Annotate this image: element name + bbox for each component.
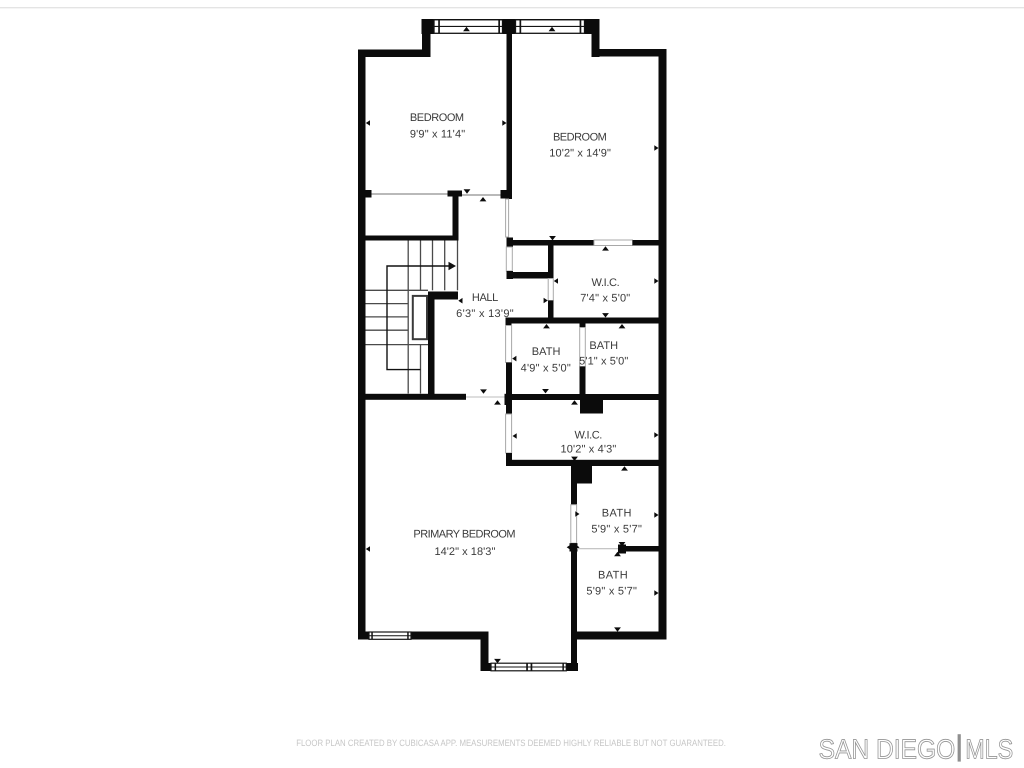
- svg-text:MLS: MLS: [965, 733, 1013, 764]
- svg-text:BATH: BATH: [602, 508, 632, 520]
- svg-text:BEDROOM: BEDROOM: [553, 132, 607, 144]
- svg-text:BEDROOM: BEDROOM: [410, 112, 464, 124]
- svg-text:6'3" x 13'9": 6'3" x 13'9": [456, 308, 514, 320]
- svg-text:7'4" x 5'0": 7'4" x 5'0": [580, 293, 630, 305]
- svg-text:5'9" x 5'7": 5'9" x 5'7": [586, 586, 637, 598]
- svg-text:W.I.C.: W.I.C.: [574, 430, 602, 442]
- svg-text:9'9" x 11'4": 9'9" x 11'4": [410, 129, 465, 141]
- svg-text:4'9" x 5'0": 4'9" x 5'0": [521, 363, 571, 375]
- svg-text:5'9" x 5'7": 5'9" x 5'7": [591, 524, 642, 536]
- svg-text:SAN DIEGO: SAN DIEGO: [819, 733, 956, 764]
- svg-text:14'2" x 18'3": 14'2" x 18'3": [434, 546, 495, 558]
- svg-text:PRIMARY BEDROOM: PRIMARY BEDROOM: [413, 529, 515, 541]
- svg-text:BATH: BATH: [589, 340, 618, 352]
- svg-text:FLOOR PLAN CREATED BY CUBICASA: FLOOR PLAN CREATED BY CUBICASA APP. MEAS…: [296, 738, 726, 748]
- svg-text:10'2" x 14'9": 10'2" x 14'9": [549, 147, 611, 159]
- svg-text:BATH: BATH: [532, 346, 561, 358]
- svg-text:W.I.C.: W.I.C.: [592, 277, 620, 289]
- svg-text:5'1" x 5'0": 5'1" x 5'0": [579, 356, 628, 368]
- svg-text:BATH: BATH: [598, 570, 628, 582]
- svg-text:10'2" x 4'3": 10'2" x 4'3": [561, 444, 617, 456]
- svg-text:HALL: HALL: [472, 292, 498, 304]
